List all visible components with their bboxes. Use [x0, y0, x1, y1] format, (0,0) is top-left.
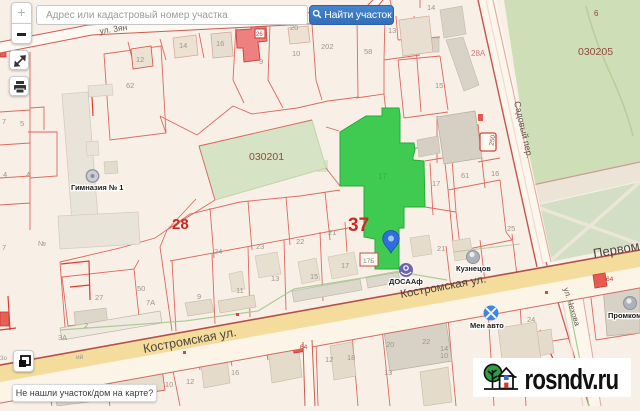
svg-text:58: 58 — [364, 47, 372, 56]
svg-text:17: 17 — [378, 172, 387, 181]
svg-text:10: 10 — [165, 380, 173, 389]
svg-text:№: № — [38, 239, 46, 248]
svg-text:64: 64 — [606, 276, 614, 283]
svg-text:Кузнецов: Кузнецов — [456, 264, 491, 273]
svg-text:12: 12 — [136, 55, 144, 64]
svg-text:18: 18 — [347, 353, 355, 362]
svg-text:12: 12 — [325, 355, 333, 364]
svg-text:28: 28 — [172, 216, 189, 233]
svg-text:24: 24 — [527, 315, 535, 324]
svg-text:10: 10 — [440, 351, 448, 360]
svg-text:28А: 28А — [471, 49, 486, 58]
svg-text:ДОСААф: ДОСААф — [389, 277, 423, 286]
svg-text:17: 17 — [432, 179, 440, 188]
svg-text:4: 4 — [3, 170, 7, 179]
svg-text:202: 202 — [321, 42, 334, 51]
svg-text:21: 21 — [328, 228, 336, 237]
svg-text:9: 9 — [259, 57, 263, 66]
svg-text:13: 13 — [384, 368, 392, 377]
svg-text:22: 22 — [296, 237, 304, 246]
svg-text:24: 24 — [214, 247, 222, 256]
svg-text:16: 16 — [491, 169, 499, 178]
svg-text:22: 22 — [422, 337, 430, 346]
svg-text:Промком: Промком — [608, 311, 640, 320]
svg-text:Гимназия № 1: Гимназия № 1 — [71, 183, 123, 192]
svg-text:030201: 030201 — [249, 151, 284, 163]
svg-text:64: 64 — [300, 344, 308, 351]
svg-text:27: 27 — [95, 293, 103, 302]
svg-text:61: 61 — [461, 171, 469, 180]
svg-text:62: 62 — [126, 81, 134, 90]
svg-text:21: 21 — [437, 244, 445, 253]
svg-text:ий: ий — [76, 353, 84, 361]
svg-text:17Б: 17Б — [363, 258, 375, 265]
svg-text:14: 14 — [179, 41, 187, 50]
svg-text:3А: 3А — [58, 333, 67, 342]
svg-text:16: 16 — [231, 368, 239, 377]
svg-text:2: 2 — [84, 321, 88, 330]
svg-text:15: 15 — [435, 81, 443, 90]
svg-text:5: 5 — [20, 119, 24, 128]
svg-text:14: 14 — [427, 3, 435, 12]
svg-text:15: 15 — [310, 272, 318, 281]
svg-text:50: 50 — [137, 284, 145, 293]
svg-text:12: 12 — [186, 377, 194, 386]
svg-text:7: 7 — [2, 117, 6, 126]
svg-text:13: 13 — [388, 26, 396, 35]
svg-text:26: 26 — [256, 32, 263, 38]
svg-text:10: 10 — [292, 49, 300, 58]
svg-text:25: 25 — [507, 224, 515, 233]
svg-text:Зо: Зо — [0, 356, 8, 362]
svg-text:9: 9 — [197, 292, 201, 301]
svg-text:4: 4 — [26, 170, 30, 179]
svg-text:13: 13 — [271, 274, 279, 283]
svg-text:23: 23 — [256, 242, 264, 251]
svg-text:11: 11 — [236, 286, 244, 295]
svg-text:Мен авто: Мен авто — [470, 321, 504, 330]
svg-text:7: 7 — [2, 243, 6, 252]
svg-text:37: 37 — [348, 215, 369, 236]
svg-text:030205: 030205 — [578, 46, 613, 58]
svg-text:20: 20 — [386, 340, 394, 349]
svg-text:6: 6 — [594, 9, 599, 18]
svg-text:17: 17 — [341, 261, 349, 270]
svg-text:rosndv.ru: rosndv.ru — [524, 364, 618, 395]
svg-text:7А: 7А — [146, 298, 155, 307]
svg-text:16: 16 — [216, 39, 224, 48]
